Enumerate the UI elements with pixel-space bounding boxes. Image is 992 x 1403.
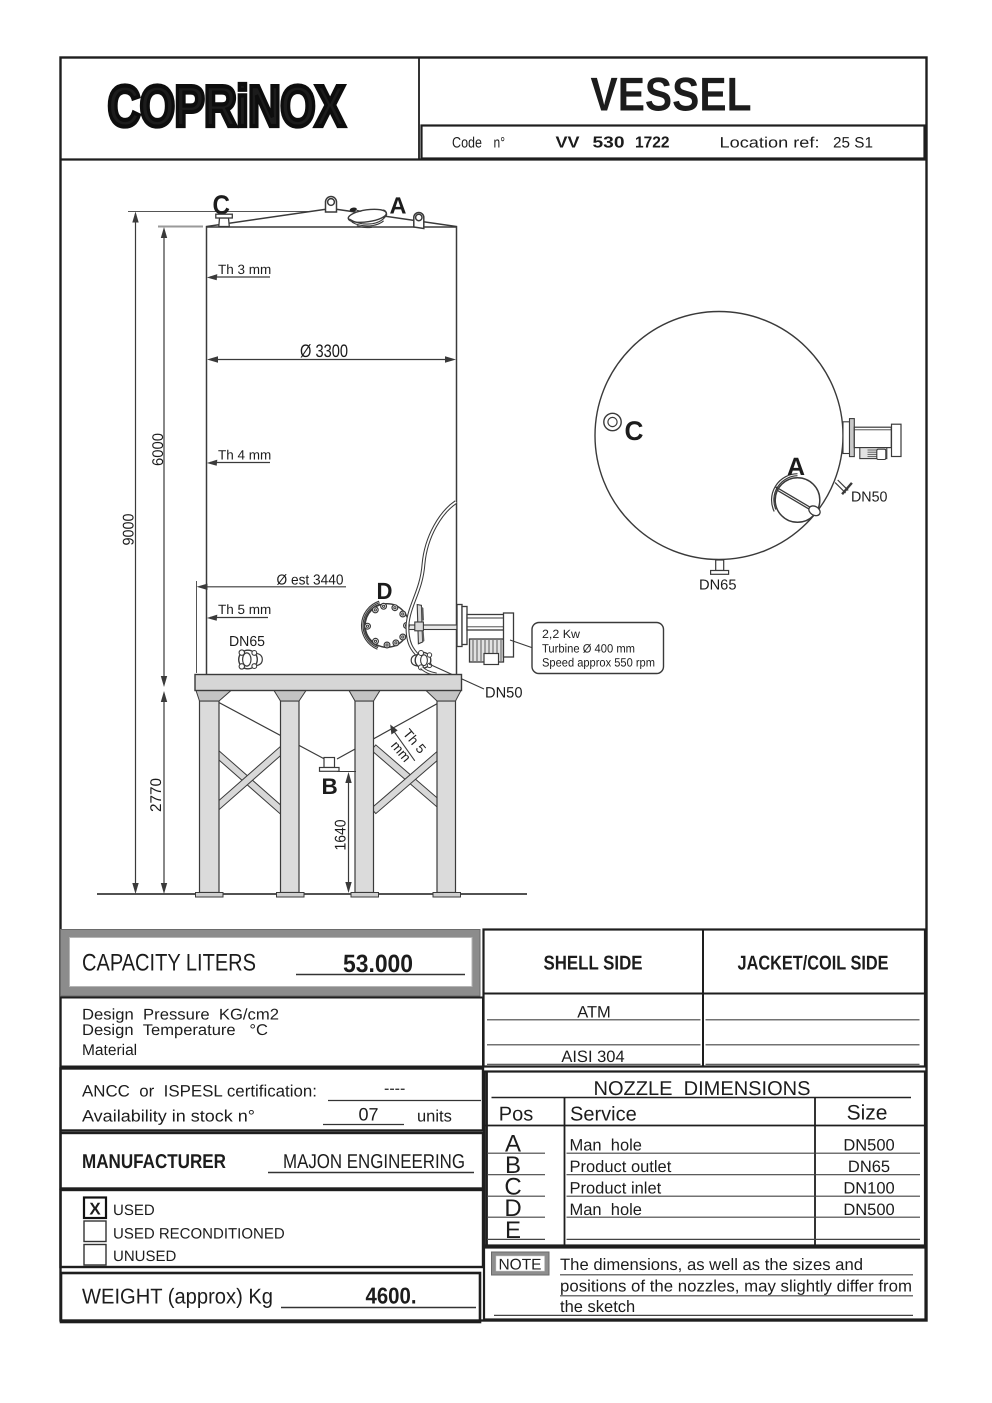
svg-text:ANCC or ISPESL certification: ANCC or ISPESL certification: xyxy=(82,1083,317,1101)
svg-text:WEIGHT (approx) Kg: WEIGHT (approx) Kg xyxy=(82,1285,273,1309)
svg-text:CAPACITY LITERS: CAPACITY LITERS xyxy=(82,950,256,977)
svg-text:DN50: DN50 xyxy=(851,490,888,506)
svg-text:A: A xyxy=(390,193,407,219)
svg-text:Turbine Ø 400 mm: Turbine Ø 400 mm xyxy=(542,642,635,656)
svg-text:Th 5 mm: Th 5 mm xyxy=(218,602,271,617)
svg-text:DN65: DN65 xyxy=(848,1158,890,1176)
svg-text:VV: VV xyxy=(556,135,580,152)
svg-text:the sketch: the sketch xyxy=(560,1298,635,1316)
svg-text:UNUSED: UNUSED xyxy=(113,1248,177,1265)
svg-text:9000: 9000 xyxy=(121,513,138,545)
svg-text:----: ---- xyxy=(384,1081,405,1098)
svg-text:D: D xyxy=(377,578,393,604)
svg-text:Design Pressure KG/cm2: Design Pressure KG/cm2 xyxy=(82,1007,279,1024)
svg-text:Ø est 3440: Ø est 3440 xyxy=(277,573,344,589)
svg-text:MAJON ENGINEERING: MAJON ENGINEERING xyxy=(283,1151,465,1173)
svg-text:Man hole: Man hole xyxy=(570,1201,642,1219)
svg-text:2,2 Kw: 2,2 Kw xyxy=(542,627,580,641)
svg-text:07: 07 xyxy=(359,1105,379,1125)
svg-text:Speed approx 550 rpm: Speed approx 550 rpm xyxy=(542,656,655,670)
svg-text:Pos: Pos xyxy=(499,1104,533,1126)
svg-text:n°: n° xyxy=(494,135,506,152)
svg-text:NOTE: NOTE xyxy=(498,1257,541,1274)
svg-text:2770: 2770 xyxy=(148,778,165,812)
svg-text:Product inlet: Product inlet xyxy=(570,1180,662,1198)
svg-text:positions of the nozzles, may: positions of the nozzles, may slightly d… xyxy=(560,1278,912,1296)
svg-text:MANUFACTURER: MANUFACTURER xyxy=(82,1151,226,1173)
svg-text:X: X xyxy=(89,1200,101,1219)
svg-text:25 S1: 25 S1 xyxy=(833,135,873,152)
svg-text:VESSEL: VESSEL xyxy=(591,69,752,122)
svg-text:1640: 1640 xyxy=(333,819,350,850)
svg-text:COPRiNOX: COPRiNOX xyxy=(108,74,346,139)
svg-text:Location ref:: Location ref: xyxy=(720,135,820,152)
svg-text:AISI 304: AISI 304 xyxy=(561,1048,624,1066)
svg-text:1722: 1722 xyxy=(635,135,670,152)
svg-text:Design Temperature °C: Design Temperature °C xyxy=(82,1022,268,1039)
svg-text:NOZZLE DIMENSIONS: NOZZLE DIMENSIONS xyxy=(594,1078,811,1100)
svg-text:Material: Material xyxy=(82,1042,137,1059)
svg-text:The dimensions, as well as the: The dimensions, as well as the sizes and xyxy=(560,1256,863,1274)
svg-text:JACKET/COIL SIDE: JACKET/COIL SIDE xyxy=(738,953,889,975)
svg-text:units: units xyxy=(417,1108,452,1126)
svg-text:B: B xyxy=(322,774,338,799)
svg-text:SHELL SIDE: SHELL SIDE xyxy=(544,953,643,975)
svg-text:USED RECONDITIONED: USED RECONDITIONED xyxy=(113,1226,285,1243)
svg-text:Th 4 mm: Th 4 mm xyxy=(218,448,271,463)
svg-text:C: C xyxy=(625,416,644,446)
svg-text:DN50: DN50 xyxy=(485,685,523,702)
svg-text:Code: Code xyxy=(452,135,482,152)
svg-text:ATM: ATM xyxy=(577,1004,611,1022)
svg-text:Service: Service xyxy=(570,1104,637,1126)
svg-text:6000: 6000 xyxy=(150,433,167,466)
svg-text:A: A xyxy=(787,453,805,481)
svg-text:Ø 3300: Ø 3300 xyxy=(300,341,348,361)
svg-text:Availability in stock n°: Availability in stock n° xyxy=(82,1108,255,1126)
svg-text:USED: USED xyxy=(113,1202,155,1219)
svg-text:DN100: DN100 xyxy=(843,1180,894,1198)
svg-text:Th 3 mm: Th 3 mm xyxy=(218,262,271,277)
svg-text:Product outlet: Product outlet xyxy=(570,1158,672,1176)
svg-text:4600.: 4600. xyxy=(366,1283,417,1309)
svg-text:DN500: DN500 xyxy=(843,1137,894,1155)
svg-text:DN65: DN65 xyxy=(229,634,265,650)
svg-text:530: 530 xyxy=(593,135,625,152)
svg-text:DN65: DN65 xyxy=(699,578,737,594)
svg-text:Man hole: Man hole xyxy=(570,1137,642,1155)
svg-text:DN500: DN500 xyxy=(843,1201,894,1219)
svg-text:Size: Size xyxy=(847,1102,888,1125)
